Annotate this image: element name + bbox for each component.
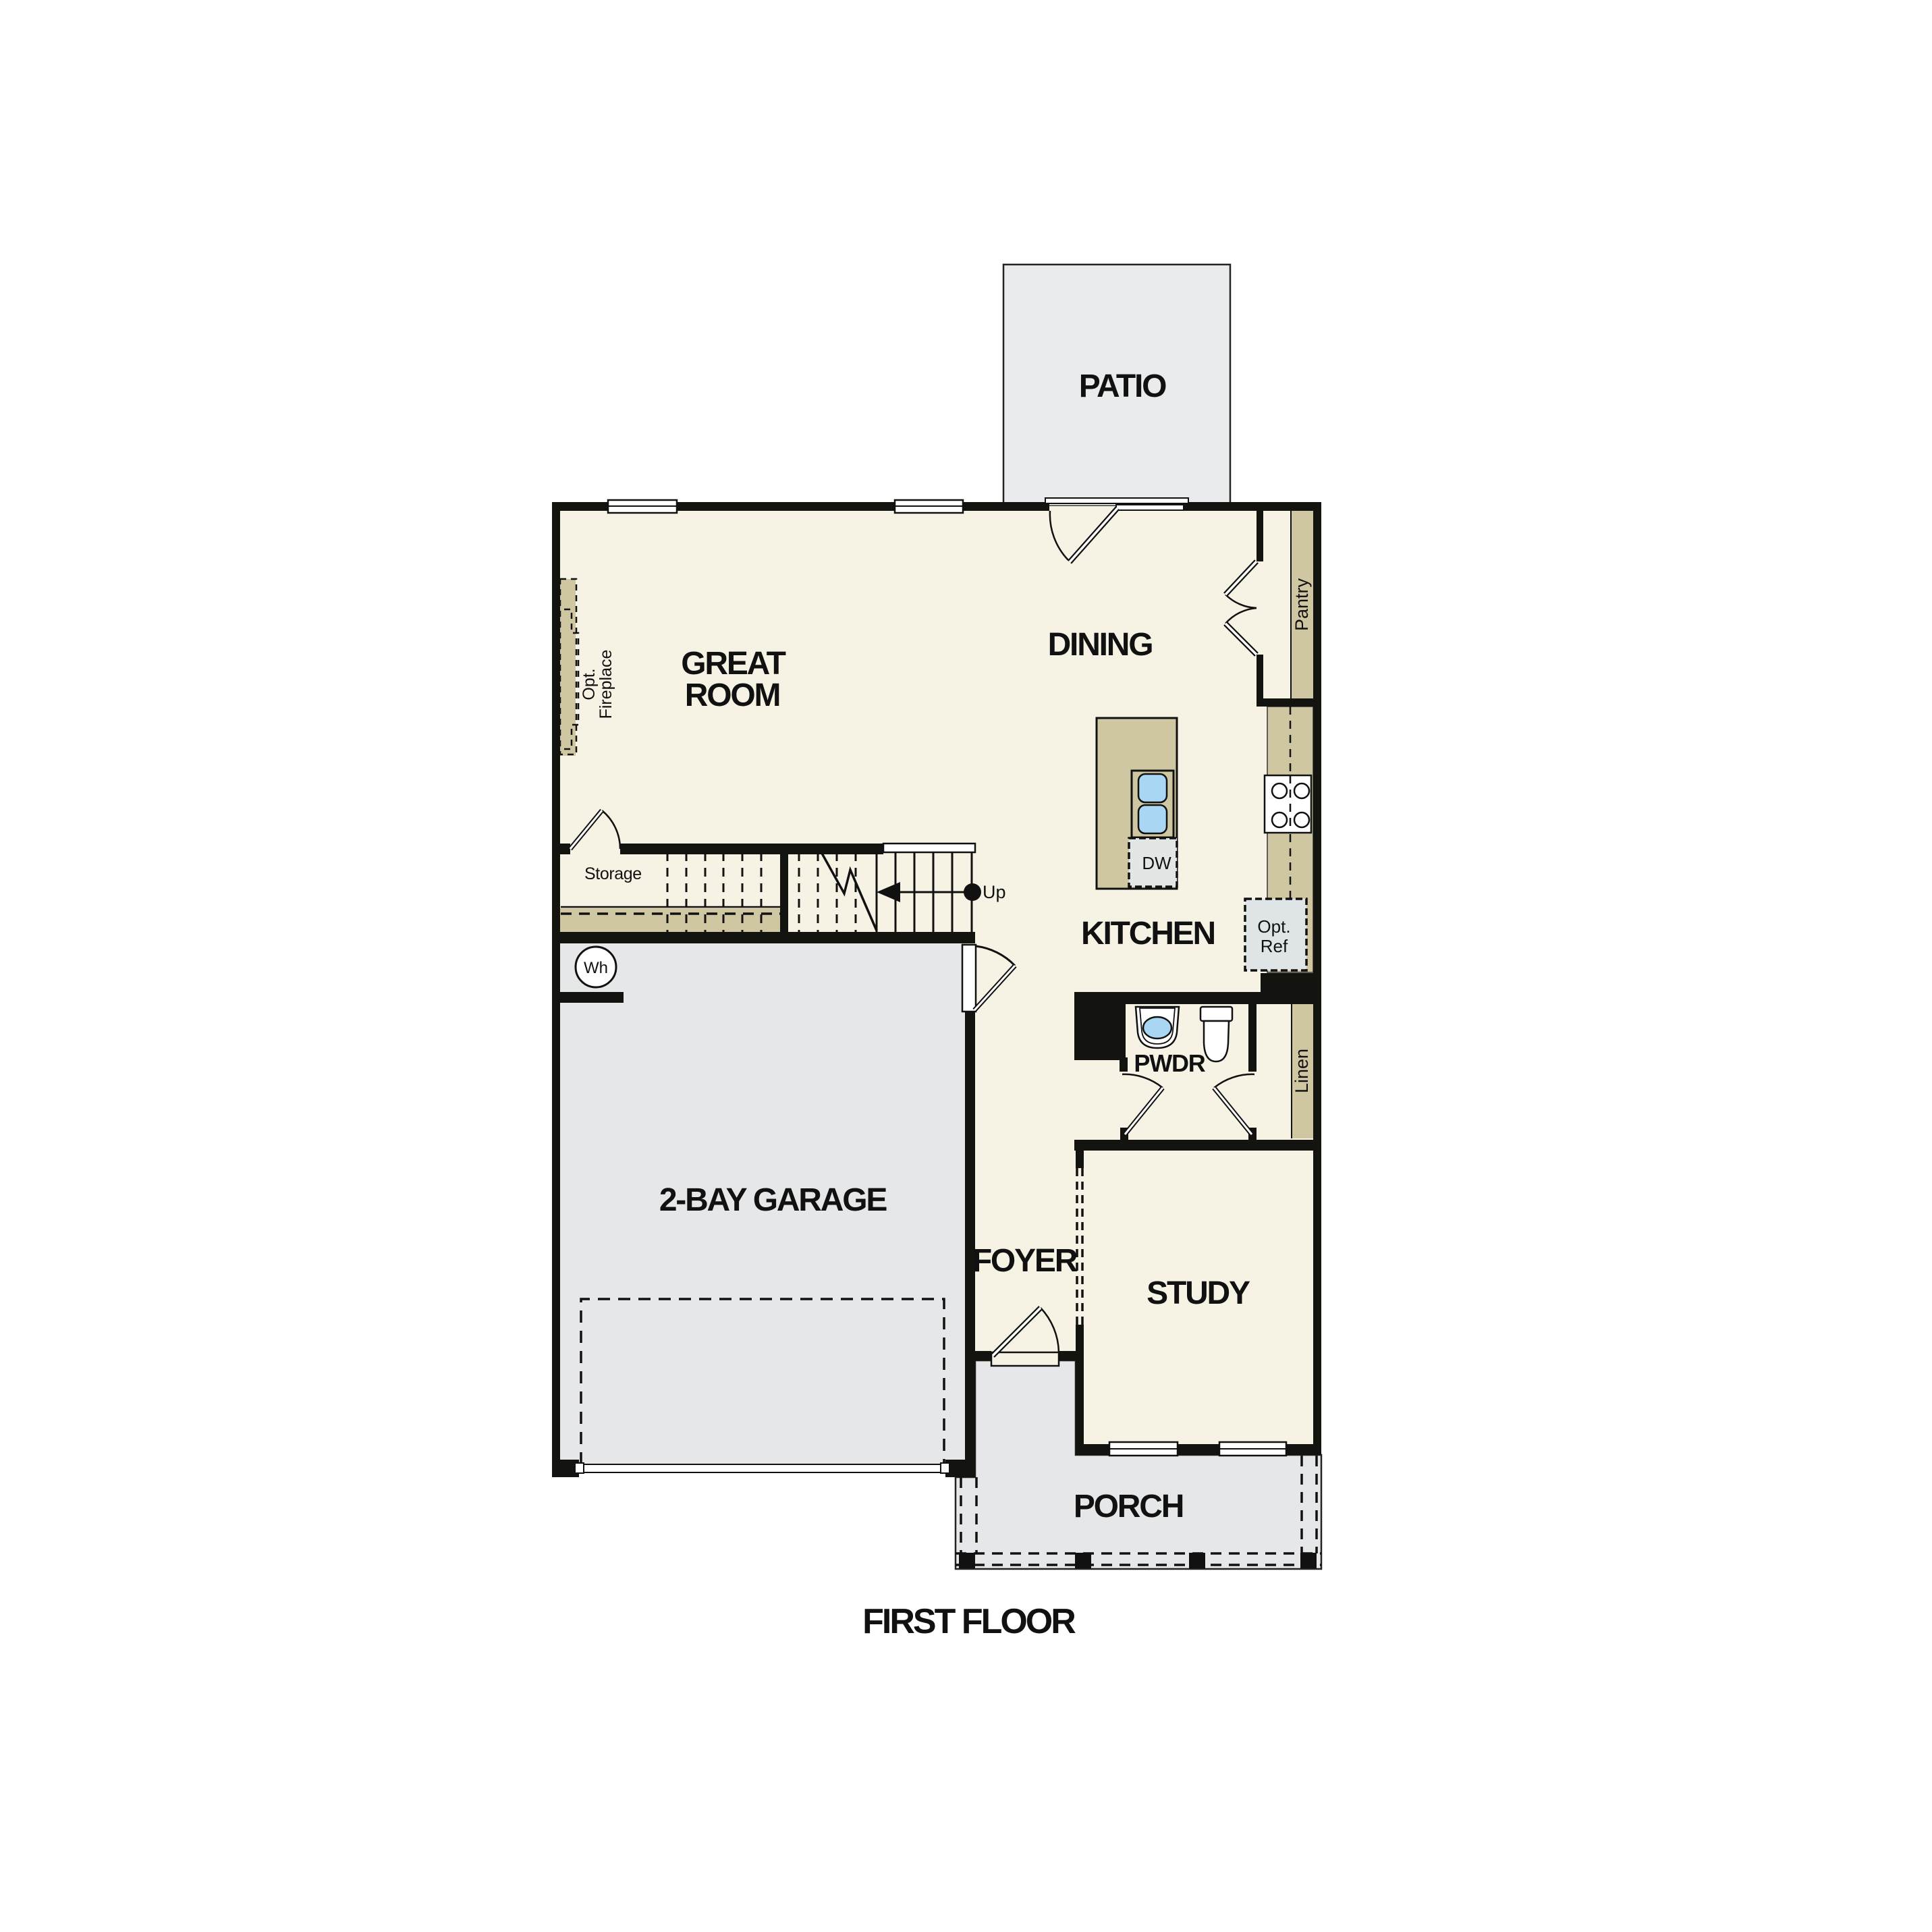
svg-text:FOYER: FOYER	[972, 1243, 1078, 1279]
svg-text:PORCH: PORCH	[1074, 1489, 1183, 1524]
svg-text:Up: Up	[983, 882, 1006, 902]
svg-text:DINING: DINING	[1048, 627, 1153, 663]
svg-text:ROOM: ROOM	[685, 678, 780, 713]
svg-text:Opt.: Opt.	[580, 668, 599, 700]
svg-text:STUDY: STUDY	[1147, 1275, 1250, 1311]
svg-text:Linen: Linen	[1292, 1049, 1312, 1093]
svg-text:PATIO: PATIO	[1079, 368, 1166, 404]
svg-text:2-BAY GARAGE: 2-BAY GARAGE	[659, 1182, 887, 1218]
svg-text:FIRST FLOOR: FIRST FLOOR	[862, 1602, 1076, 1641]
svg-text:Fireplace: Fireplace	[597, 650, 615, 719]
svg-text:Wh: Wh	[584, 959, 608, 977]
svg-text:GREAT: GREAT	[681, 646, 785, 682]
svg-text:DW: DW	[1142, 853, 1171, 873]
svg-text:Opt.: Opt.	[1257, 916, 1290, 937]
svg-text:PWDR: PWDR	[1134, 1049, 1205, 1077]
svg-text:Storage: Storage	[584, 864, 642, 883]
svg-text:Ref: Ref	[1261, 936, 1288, 956]
svg-text:KITCHEN: KITCHEN	[1081, 916, 1215, 951]
svg-text:Pantry: Pantry	[1292, 578, 1312, 631]
